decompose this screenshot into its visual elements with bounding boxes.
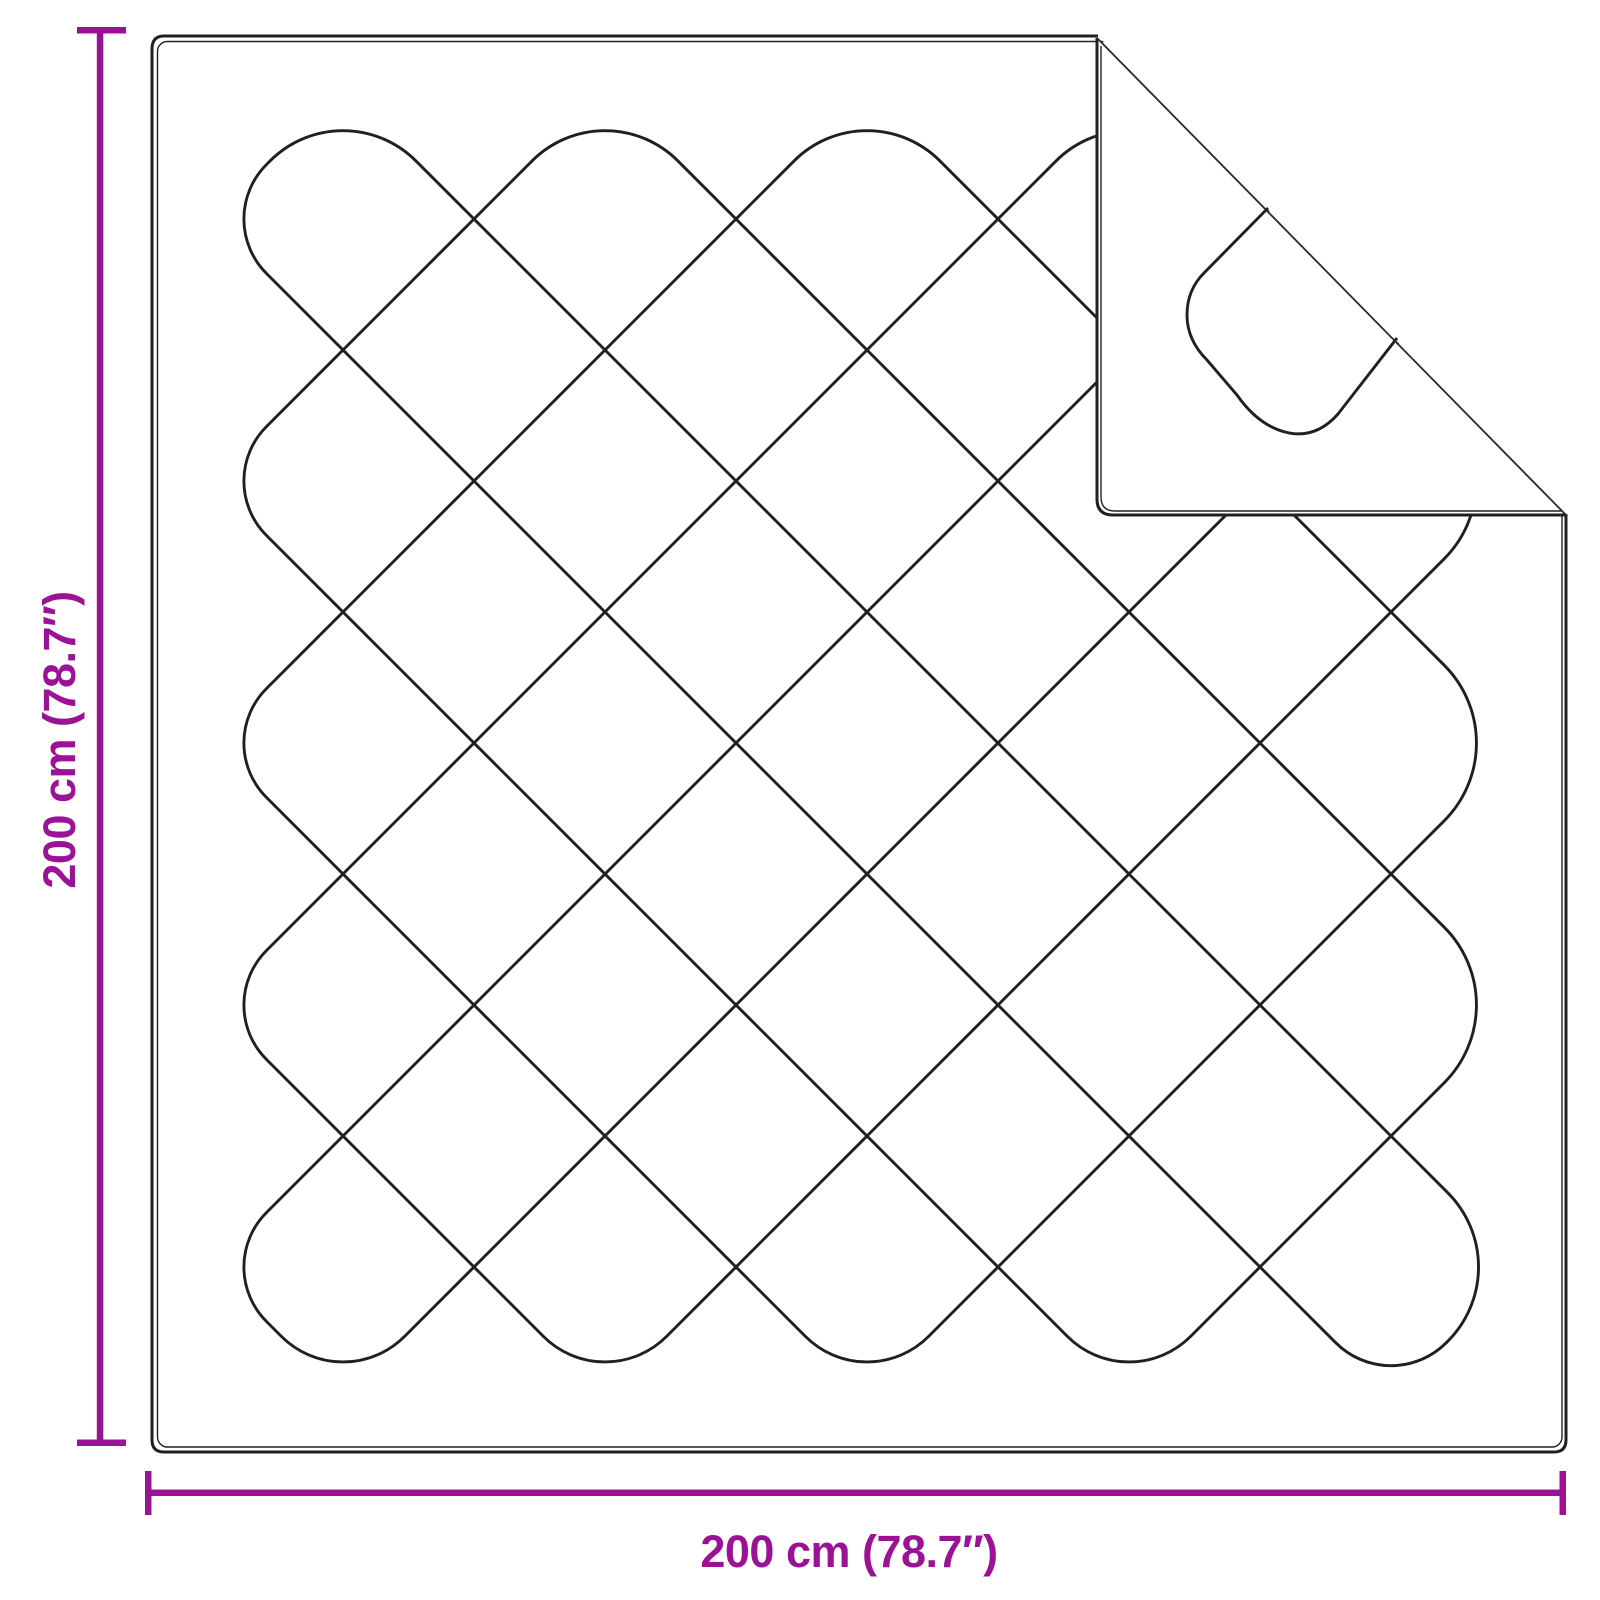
svg-text:200 cm (78.7″): 200 cm (78.7″)	[700, 1526, 997, 1577]
svg-text:200 cm (78.7″): 200 cm (78.7″)	[34, 591, 85, 888]
